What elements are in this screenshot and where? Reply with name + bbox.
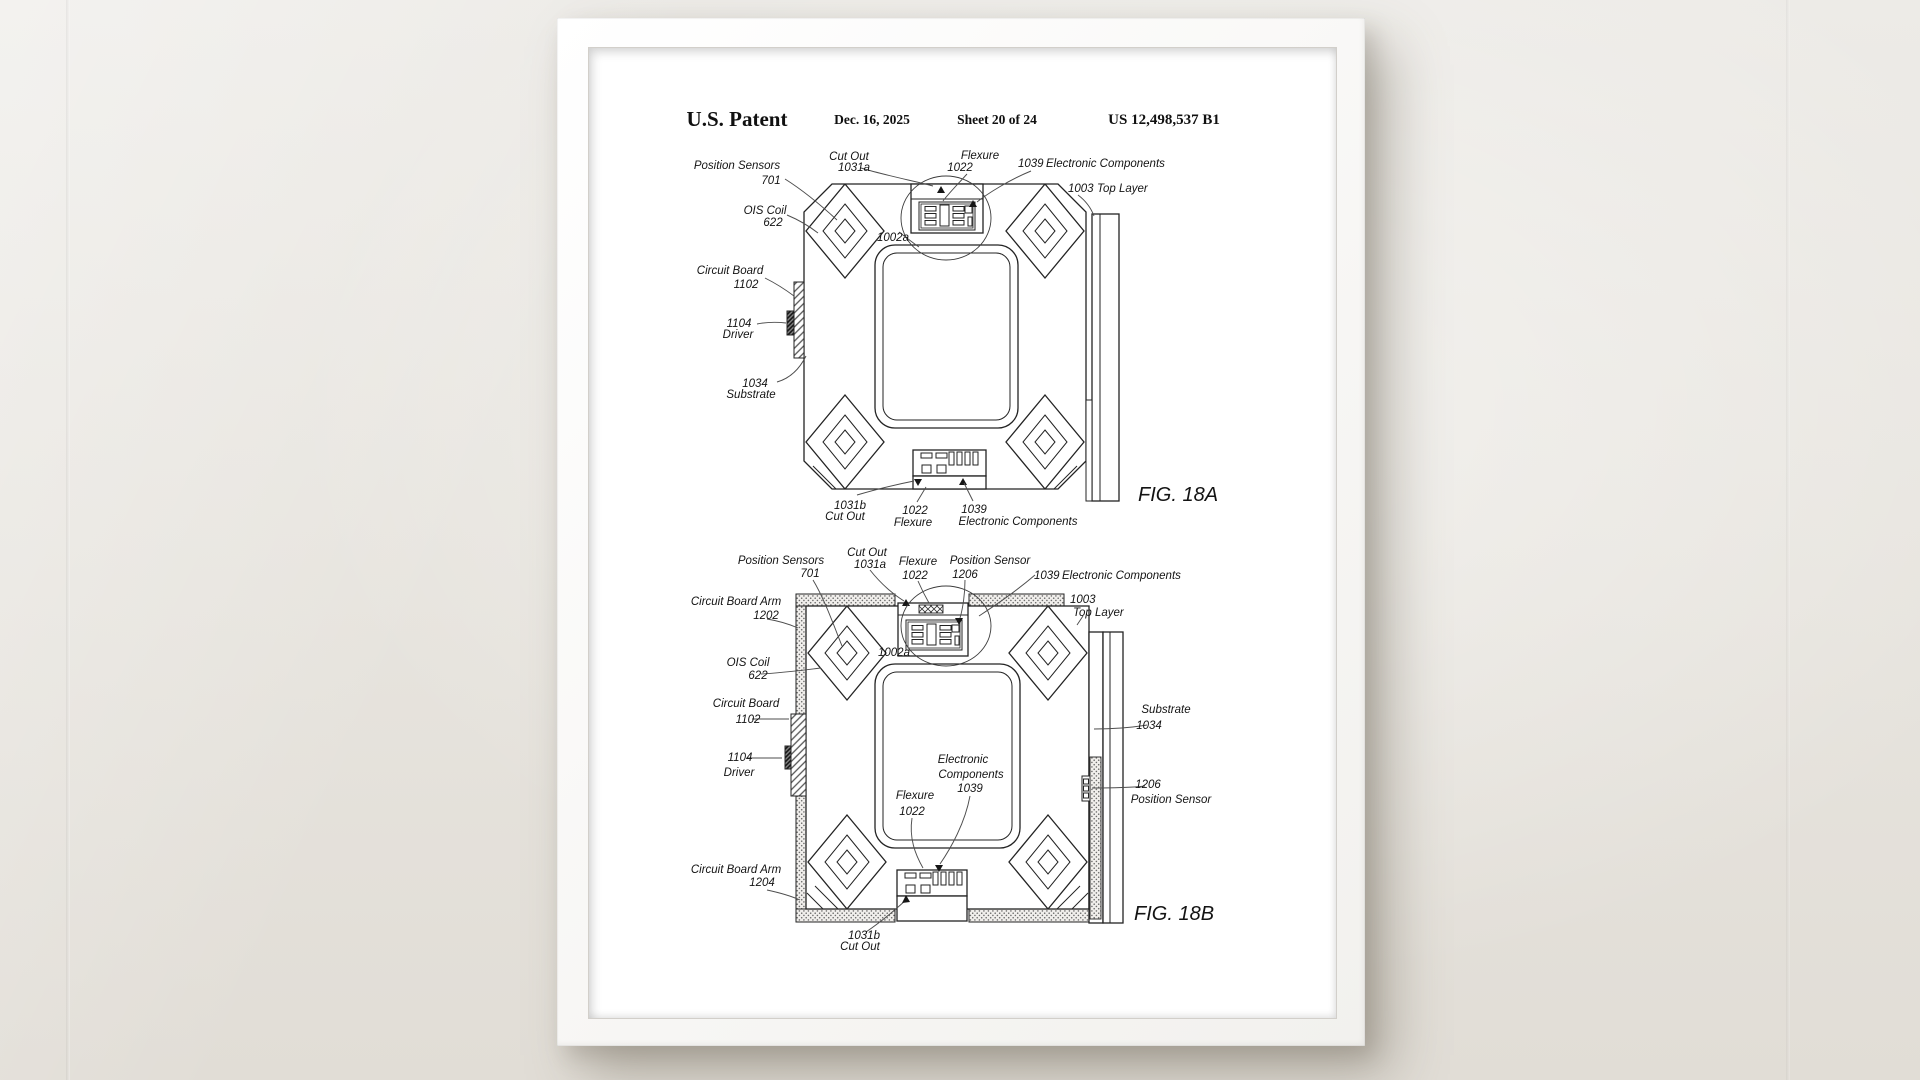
fig18a-label-position-sensors-num: 701: [761, 175, 780, 187]
fig18a-label-driver: Driver: [723, 329, 755, 341]
fig18b-label-ois-coil-num: 622: [748, 670, 768, 682]
fig18b-label-top-layer-num: 1003: [1070, 594, 1096, 606]
fig18b-label-position-sensor-right: Position Sensor: [1131, 794, 1213, 806]
fig18b-label-position-sensor-right-num: 1206: [1135, 779, 1161, 791]
fig18b-label-cb-arm-bottom: Circuit Board Arm: [691, 864, 782, 876]
fig18b-label-driver: Driver: [724, 767, 756, 779]
fig18b-label-position-sensors: Position Sensors: [738, 555, 825, 567]
fig18a-label-circuit-board-num: 1102: [734, 279, 759, 291]
fig18b-label-top-layer: Top Layer: [1073, 607, 1125, 619]
fig18a-label-flexure-bottom: Flexure: [894, 517, 932, 529]
patent-drawing-svg: U.S. Patent Dec. 16, 2025 Sheet 20 of 24…: [589, 48, 1338, 1020]
fig18a-label-ec-bottom-num: 1039: [961, 504, 987, 516]
fig18b-label-ec-center-1: Electronic: [938, 754, 989, 766]
fig18b-label-circuit-board: Circuit Board: [713, 698, 780, 710]
fig18a-label-detail-ref: 1002a: [877, 232, 909, 244]
fig18b-label-ec-center-num: 1039: [957, 783, 983, 795]
fig18b-label-detail-ref: 1002a: [878, 647, 910, 659]
fig18a-top-module: [911, 184, 983, 233]
patent-header-sheet: Sheet 20 of 24: [957, 112, 1037, 127]
fig18a-circuit-board: [794, 282, 804, 358]
fig18b-label-substrate-num: 1034: [1136, 720, 1162, 732]
fig18a-label-flexure-top-num: 1022: [947, 162, 973, 174]
fig18b-label-cut-out-top: Cut Out: [847, 547, 887, 559]
fig18a-label-substrate: Substrate: [726, 389, 775, 401]
fig18b-label-cb-arm-top: Circuit Board Arm: [691, 596, 782, 608]
fig18b-caption: FIG. 18B: [1134, 903, 1214, 925]
fig18b-label-position-sensors-num: 701: [800, 568, 819, 580]
fig18a-label-top-layer-num: 1003: [1068, 183, 1094, 195]
patent-header-number: US 12,498,537 B1: [1108, 112, 1220, 128]
fig18a-label-top-layer: Top Layer: [1097, 183, 1149, 195]
fig18a-label-ec-bottom: Electronic Components: [959, 516, 1078, 528]
fig18b-label-cb-arm-top-num: 1202: [753, 610, 779, 622]
fig18b-label-flexure-center: Flexure: [896, 790, 934, 802]
fig18b-bottom-module: [897, 865, 967, 921]
fig18a-caption: FIG. 18A: [1138, 484, 1218, 506]
fig18b-label-circuit-board-num: 1102: [736, 714, 761, 726]
fig18a-label-ois-coil: OIS Coil: [744, 205, 787, 217]
fig18a-top-layer: [1086, 214, 1119, 501]
fig18b-label-ec-top: Electronic Components: [1062, 570, 1181, 582]
picture-frame: U.S. Patent Dec. 16, 2025 Sheet 20 of 24…: [557, 18, 1365, 1046]
wall-seam-right: [1786, 0, 1790, 1080]
fig18a-driver: [787, 311, 794, 335]
fig18a-bottom-module: [913, 450, 986, 489]
fig-18a-drawing: Position Sensors 701 OIS Coil 622 Cut Ou…: [694, 150, 1218, 529]
fig18b-circuit-board: [791, 714, 806, 796]
fig18a-label-position-sensors: Position Sensors: [694, 160, 781, 172]
patent-header: U.S. Patent Dec. 16, 2025 Sheet 20 of 24…: [687, 107, 1220, 131]
fig-18b-drawing: Position Sensors 701 Cut Out 1031a Flexu…: [691, 547, 1214, 953]
fig18b-label-position-sensor-top-num: 1206: [952, 569, 978, 581]
fig18b-label-driver-num: 1104: [728, 752, 753, 764]
wall-seam-left: [66, 0, 70, 1080]
fig18b-label-ois-coil: OIS Coil: [727, 657, 770, 669]
fig18a-label-flexure-top: Flexure: [961, 150, 999, 162]
fig18a-label-ec-top: Electronic Components: [1046, 158, 1165, 170]
fig18a-label-circuit-board: Circuit Board: [697, 265, 764, 277]
fig18b-label-cut-out-bottom: Cut Out: [840, 941, 880, 953]
patent-sheet: U.S. Patent Dec. 16, 2025 Sheet 20 of 24…: [588, 47, 1337, 1019]
fig18b-label-ec-top-num: 1039: [1034, 570, 1060, 582]
fig18b-label-cb-arm-bottom-num: 1204: [749, 877, 775, 889]
fig18a-label-ec-top-num: 1039: [1018, 158, 1044, 170]
fig18a-label-ois-coil-num: 622: [763, 217, 783, 229]
wall: { "colors": { "wall": "#e8e5e0", "frame"…: [0, 0, 1920, 1080]
fig18b-label-substrate: Substrate: [1141, 704, 1190, 716]
fig18b-label-position-sensor-top: Position Sensor: [950, 555, 1032, 567]
fig18b-label-flexure-top: Flexure: [899, 556, 937, 568]
fig18b-label-ec-center-2: Components: [938, 769, 1003, 781]
patent-header-title: U.S. Patent: [687, 107, 788, 131]
fig18b-driver: [785, 746, 791, 769]
fig18b-label-flexure-top-num: 1022: [902, 570, 928, 582]
fig18a-label-flexure-bottom-num: 1022: [902, 505, 928, 517]
fig18a-center-plate: [875, 245, 1018, 428]
fig18a-label-cut-out-top-num: 1031a: [838, 162, 870, 174]
fig18b-label-cut-out-top-num: 1031a: [854, 559, 886, 571]
fig18a-label-cut-out-bottom: Cut Out: [825, 511, 865, 523]
patent-header-date: Dec. 16, 2025: [834, 112, 910, 127]
fig18b-label-flexure-center-num: 1022: [899, 806, 925, 818]
